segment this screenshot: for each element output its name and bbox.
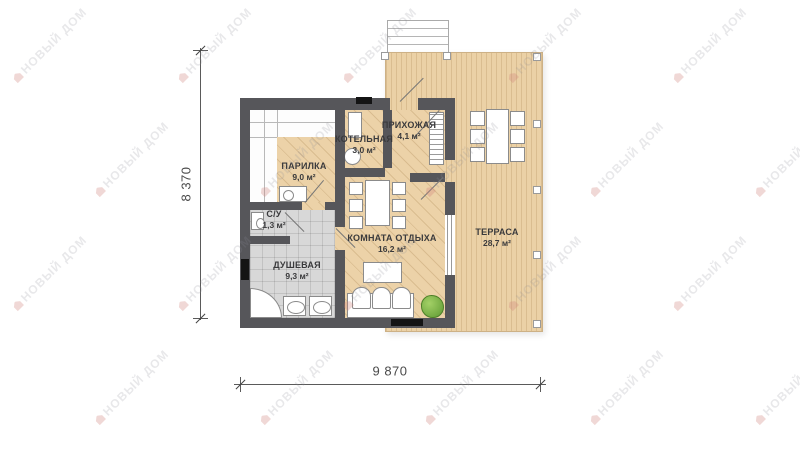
- terrace-post-icon: [533, 120, 541, 128]
- dining-table-icon: [365, 180, 390, 226]
- watermark: НОВЫЙ ДОМ: [752, 119, 800, 199]
- sink-icon: [283, 296, 306, 316]
- room-label-dushevaya: ДУШЕВАЯ 9,3 м²: [273, 260, 321, 282]
- watermark: НОВЫЙ ДОМ: [175, 5, 255, 85]
- house-logo-icon: [588, 185, 601, 198]
- sink-basin: [313, 301, 331, 314]
- wall-right-lower: [445, 275, 455, 328]
- house-logo-icon: [588, 413, 601, 426]
- dimension-line-height: [200, 48, 201, 320]
- window-top-icon: [356, 97, 372, 104]
- house-logo-icon: [341, 71, 354, 84]
- room-area: 9,0 м²: [281, 172, 326, 183]
- watermark: НОВЫЙ ДОМ: [670, 5, 750, 85]
- terrace-post-icon: [443, 52, 451, 60]
- bench-edge: [250, 122, 335, 123]
- chair-icon: [510, 129, 525, 144]
- room-name: С/У: [262, 209, 285, 220]
- room-label-terrasa: ТЕРРАСА 28,7 м²: [475, 227, 518, 249]
- entrance-stairs-icon: [387, 20, 449, 53]
- room-area: 16,2 м²: [347, 244, 436, 255]
- house-logo-icon: [93, 185, 106, 198]
- chair-icon: [470, 147, 485, 162]
- chair-icon: [392, 216, 406, 229]
- sofa-cushion: [392, 287, 411, 309]
- watermark: НОВЫЙ ДОМ: [587, 119, 667, 199]
- wall-sauna-bottom-stub: [325, 202, 335, 210]
- room-label-su: С/У 1,3 м²: [262, 209, 285, 231]
- room-area: 1,3 м²: [262, 220, 285, 231]
- room-name: ДУШЕВАЯ: [273, 260, 321, 271]
- wall-left: [240, 98, 250, 328]
- room-area: 4,1 м²: [382, 131, 436, 142]
- chair-icon: [349, 199, 363, 212]
- dimension-line-width: [234, 384, 546, 385]
- room-name: ТЕРРАСА: [475, 227, 518, 238]
- sink-basin: [287, 301, 305, 314]
- terrace-post-icon: [381, 52, 389, 60]
- window-glass-line: [447, 215, 448, 275]
- room-area: 9,3 м²: [273, 271, 321, 282]
- wall-boiler-bottom: [345, 168, 385, 177]
- wall-wc-bottom: [240, 236, 290, 244]
- house-logo-icon: [423, 413, 436, 426]
- terrace-post-icon: [533, 320, 541, 328]
- coffee-table-icon: [363, 262, 402, 283]
- watermark: НОВЫЙ ДОМ: [587, 347, 667, 427]
- plant-icon: [421, 295, 444, 318]
- house-logo-icon: [176, 299, 189, 312]
- sofa-icon: [347, 293, 414, 318]
- watermark: НОВЫЙ ДОМ: [670, 233, 750, 313]
- house-logo-icon: [671, 71, 684, 84]
- sofa-cushion: [372, 287, 391, 309]
- watermark: НОВЫЙ ДОМ: [752, 347, 800, 427]
- chair-icon: [510, 111, 525, 126]
- wall-right-middle: [445, 182, 455, 215]
- wall-inner-vertical-upper: [335, 110, 345, 227]
- chair-icon: [510, 147, 525, 162]
- dimension-width-label: 9 870: [372, 364, 407, 379]
- floor-plan-canvas: НОВЫЙ ДОМ НОВЫЙ ДОМ НОВЫЙ ДОМ НОВЫЙ ДОМ …: [0, 0, 800, 450]
- room-label-prihozhaya: ПРИХОЖАЯ 4,1 м²: [382, 120, 436, 142]
- house-logo-icon: [753, 185, 766, 198]
- room-name: ПАРИЛКА: [281, 161, 326, 172]
- room-area: 28,7 м²: [475, 238, 518, 249]
- room-area: 3,0 м²: [335, 145, 393, 156]
- window-glass-line: [451, 215, 452, 275]
- house-logo-icon: [753, 413, 766, 426]
- terrace-post-icon: [533, 251, 541, 259]
- sofa-cushion: [352, 287, 371, 309]
- window-right-icon: [445, 215, 455, 275]
- room-name: ПРИХОЖАЯ: [382, 120, 436, 131]
- house-logo-icon: [176, 71, 189, 84]
- watermark: НОВЫЙ ДОМ: [10, 5, 90, 85]
- stove-burner: [283, 190, 294, 201]
- house-logo-icon: [11, 71, 24, 84]
- chair-icon: [349, 182, 363, 195]
- watermark: НОВЫЙ ДОМ: [92, 347, 172, 427]
- wall-right-upper: [445, 98, 455, 160]
- terrace-post-icon: [533, 53, 541, 61]
- sink-icon: [309, 296, 332, 316]
- window-bottom-icon: [391, 319, 423, 326]
- house-logo-icon: [11, 299, 24, 312]
- chair-icon: [470, 129, 485, 144]
- watermark: НОВЫЙ ДОМ: [257, 347, 337, 427]
- house-logo-icon: [671, 299, 684, 312]
- room-label-komnata-otdyha: КОМНАТА ОТДЫХА 16,2 м²: [347, 233, 436, 255]
- sauna-stove-icon: [279, 186, 307, 202]
- terrace-table-icon: [486, 109, 509, 164]
- chair-icon: [349, 216, 363, 229]
- chair-icon: [470, 111, 485, 126]
- watermark: НОВЫЙ ДОМ: [10, 233, 90, 313]
- wall-inner-vertical-lower: [335, 250, 345, 318]
- chair-icon: [392, 182, 406, 195]
- room-label-parilka: ПАРИЛКА 9,0 м²: [281, 161, 326, 183]
- bench-edge: [264, 110, 265, 202]
- chair-icon: [392, 199, 406, 212]
- watermark: НОВЫЙ ДОМ: [92, 119, 172, 199]
- dimension-height-label: 8 370: [179, 166, 194, 201]
- terrace-post-icon: [533, 186, 541, 194]
- watermark: НОВЫЙ ДОМ: [422, 347, 502, 427]
- room-name: КОМНАТА ОТДЫХА: [347, 233, 436, 244]
- house-logo-icon: [93, 413, 106, 426]
- window-left-icon: [241, 259, 249, 280]
- house-logo-icon: [258, 413, 271, 426]
